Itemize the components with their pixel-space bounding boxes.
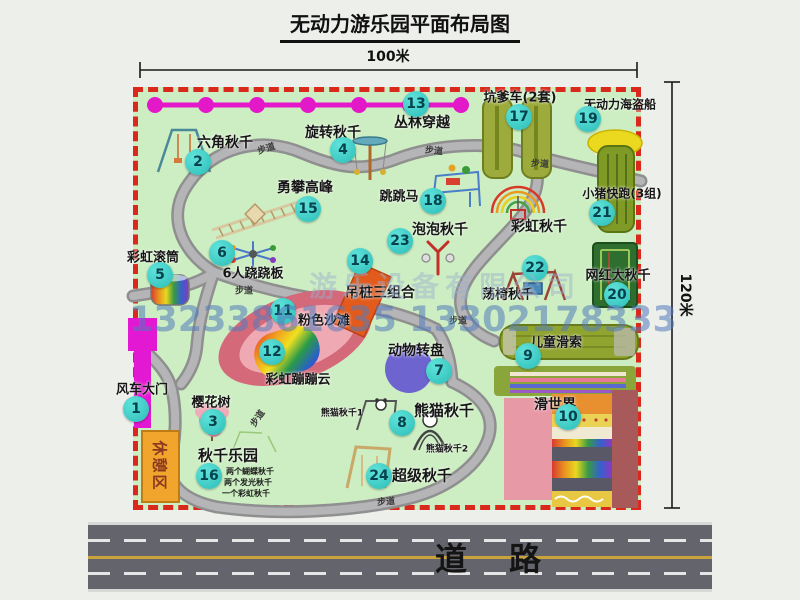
walkway-label: 步道 [424,143,443,158]
label-animal-turntable: 动物转盘 [388,340,444,360]
page-title: 无动力游乐园平面布局图 [280,8,520,43]
badge-9: 9 [515,343,541,369]
road-center-line [88,556,712,559]
top-scale-label: 100米 [366,46,409,66]
watermark-company: 游乐设备有限公司 [309,265,581,305]
watermark-phone: 13233861635 13302178333 [129,300,677,340]
badge-3: 3 [200,409,226,435]
badge-7: 7 [426,358,452,384]
badge-8: 8 [389,410,415,436]
badge-21: 21 [589,200,615,226]
badge-6: 6 [209,240,235,266]
right-scale-label: 120米 [676,273,696,316]
badge-23: 23 [387,228,413,254]
label-panda-swing-1: 熊猫秋千1 [321,406,363,419]
label-hexagon-swing: 六角秋千 [197,132,253,152]
badge-15: 15 [295,196,321,222]
badge-10: 10 [555,404,581,430]
label-brave-peak: 勇攀高峰 [277,177,333,197]
badge-24: 24 [366,463,392,489]
badge-2: 2 [185,149,211,175]
label-bubble-swing: 泡泡秋千 [412,219,468,239]
label-sakura-tree: 樱花树 [191,392,230,411]
badge-18: 18 [420,188,446,214]
label-jumping-horse: 跳跳马 [379,186,418,205]
walkway-label: 步道 [531,156,550,170]
badge-17: 17 [506,104,532,130]
badge-19: 19 [575,106,601,132]
road-lane-line [88,572,712,575]
swing-park-detail: 两个蝴蝶秋千 [226,468,274,476]
park-layout-page: 无动力游乐园平面布局图 [0,0,800,600]
road-lane-line [88,539,712,542]
badge-12: 12 [259,339,285,365]
road-label: 道路 [435,534,583,580]
label-super-swing: 超级秋千 [392,465,452,486]
label-seesaw: 6人跷跷板 [222,263,283,282]
label-panda-swing: 熊猫秋千 [414,400,474,421]
label-rest-area: 休憩区 [150,440,171,491]
label-big-swing: 网红大秋千 [585,265,650,284]
swing-park-detail: 两个发光秋千 [224,479,272,487]
badge-5: 5 [147,262,173,288]
label-pig-run: 小猪快跑(3组) [582,185,661,202]
swing-park-detail: 一个彩虹秋千 [222,490,270,498]
badge-13: 13 [403,91,429,117]
label-panda-swing-2: 熊猫秋千2 [426,442,468,455]
road: 道路 [88,522,712,592]
badge-1: 1 [123,396,149,422]
walkway-label: 步道 [377,494,396,508]
label-rainbow-swing: 彩虹秋千 [511,216,567,236]
label-bounce-cloud: 彩虹蹦蹦云 [265,369,330,388]
label-rotating-swing: 旋转秋千 [305,122,361,142]
walkway-label: 步道 [235,284,253,297]
badge-4: 4 [330,137,356,163]
label-pit-car: 坑爹车(2套) [484,87,557,106]
badge-16: 16 [196,463,222,489]
label-windmill-gate: 风车大门 [116,379,168,398]
